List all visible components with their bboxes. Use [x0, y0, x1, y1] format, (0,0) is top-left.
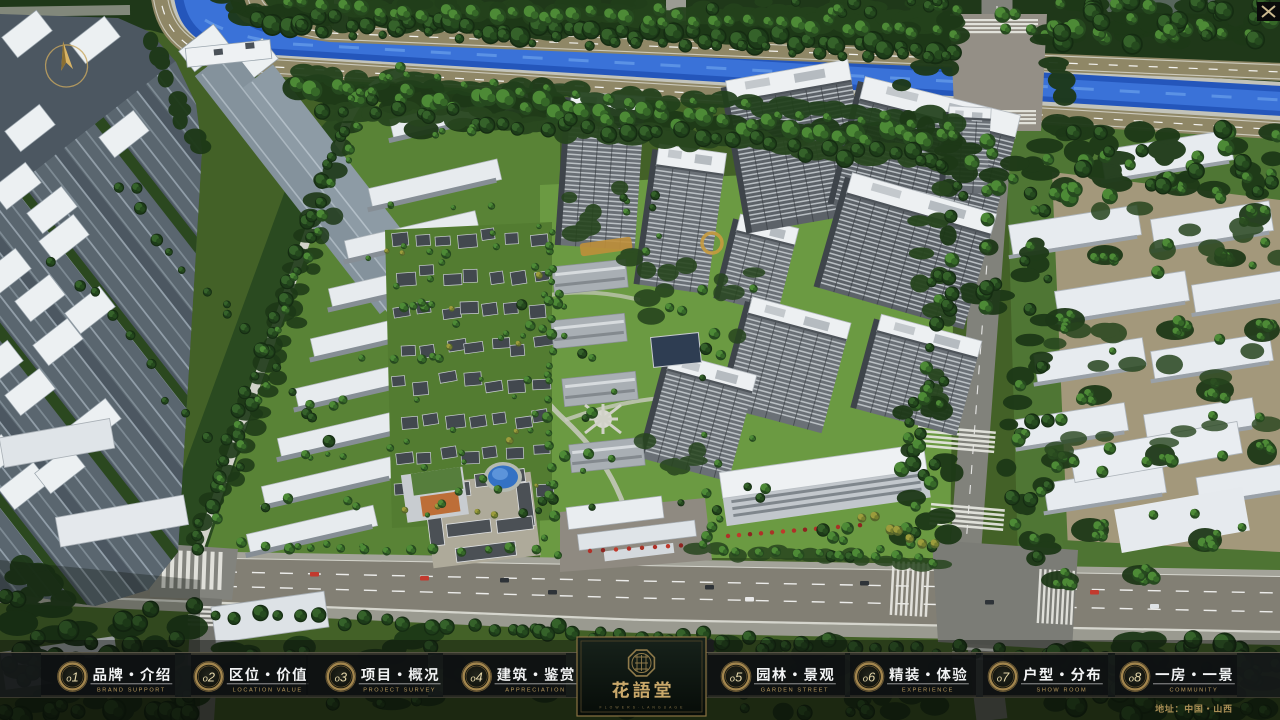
svg-text:SHOW ROOM: SHOW ROOM — [1037, 688, 1088, 694]
svg-text:COMMUNITY: COMMUNITY — [1169, 688, 1218, 694]
svg-text:EXPERIENCE: EXPERIENCE — [902, 688, 954, 694]
svg-text:LOCATION VALUE: LOCATION VALUE — [233, 688, 303, 694]
svg-text:F L O W E R S · L A N G U A G: F L O W E R S · L A N G U A G E — [600, 706, 684, 710]
svg-text:GARDEN STREET: GARDEN STREET — [761, 688, 829, 694]
svg-text:APPRECIATION: APPRECIATION — [505, 688, 565, 694]
svg-text:BRAND SUPPORT: BRAND SUPPORT — [97, 688, 166, 694]
svg-text:PROJECT SURVEY: PROJECT SURVEY — [363, 688, 436, 694]
